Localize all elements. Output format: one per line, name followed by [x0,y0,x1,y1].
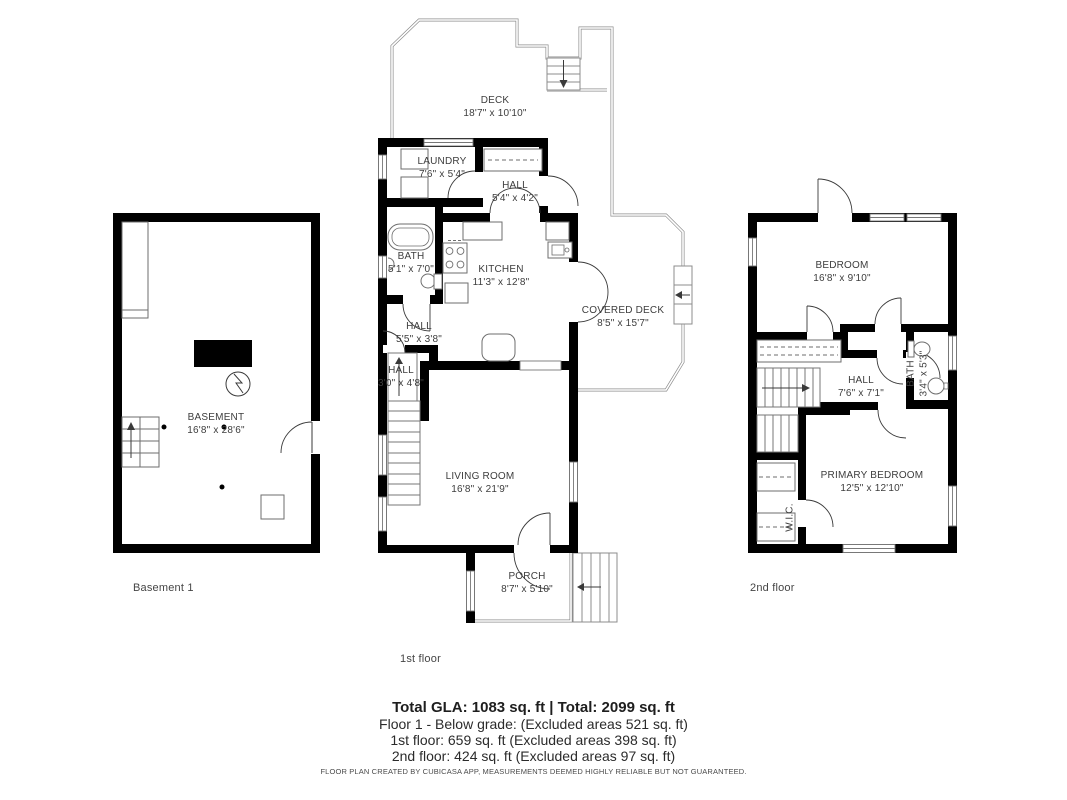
summary-floor1: Floor 1 - Below grade: (Excluded areas 5… [0,716,1067,732]
room-dims: 8'7" x 5'10" [501,583,553,596]
room-name: BATH [388,250,434,263]
room-label-bath-2: BATH 3'4" x 5'3" [905,348,932,400]
room-label-wic: W.I.C. [784,494,797,542]
room-name: HALL [396,320,442,333]
room-name: PRIMARY BEDROOM [821,469,924,482]
room-name: PORCH [501,570,553,583]
room-name: LAUNDRY [417,155,466,168]
room-label-porch: PORCH 8'7" x 5'10" [501,570,553,596]
room-dims: 18'7" x 10'10" [463,107,526,120]
room-name: KITCHEN [473,263,530,276]
room-name: W.I.C. [784,494,797,542]
room-name: HALL [378,364,424,377]
room-label-laundry: LAUNDRY 7'6" x 5'4" [417,155,466,181]
room-dims: 5'4" x 4'2" [492,192,538,205]
room-name: BASEMENT [187,411,244,424]
room-name: LIVING ROOM [446,470,515,483]
room-dims: 3'4" x 5'3" [918,348,931,400]
room-dims: 16'8" x 21'9" [446,483,515,496]
room-label-living-room: LIVING ROOM 16'8" x 21'9" [446,470,515,496]
room-label-hall-1: HALL 5'4" x 4'2" [492,179,538,205]
floor-label-first: 1st floor [400,653,441,665]
room-dims: 11'3" x 12'8" [473,276,530,289]
floor-label-basement: Basement 1 [133,582,194,594]
room-dims: 16'8" x 9'10" [813,272,870,285]
room-name: BATH [905,348,918,400]
room-label-hall-4: HALL 7'6" x 7'1" [838,374,884,400]
room-dims: 5'5" x 3'8" [396,333,442,346]
floor-label-second: 2nd floor [750,582,795,594]
room-label-bedroom: BEDROOM 16'8" x 9'10" [813,259,870,285]
room-name: BEDROOM [813,259,870,272]
room-name: HALL [838,374,884,387]
room-label-kitchen: KITCHEN 11'3" x 12'8" [473,263,530,289]
summary-floor3: 2nd floor: 424 sq. ft (Excluded areas 97… [0,748,1067,764]
floorplan-linework [0,0,1067,800]
room-label-basement: BASEMENT 16'8" x 28'6" [187,411,244,437]
room-label-covered-deck: COVERED DECK 8'5" x 15'7" [582,304,664,330]
summary-floor2: 1st floor: 659 sq. ft (Excluded areas 39… [0,732,1067,748]
room-label-deck: DECK 18'7" x 10'10" [463,94,526,120]
summary-disclaimer: FLOOR PLAN CREATED BY CUBICASA APP, MEAS… [0,767,1067,776]
room-dims: 5'1" x 7'0" [388,263,434,276]
basement-plan [118,218,322,549]
room-dims: 3'0" x 4'8" [378,377,424,390]
summary-total-gla: Total GLA: 1083 sq. ft | Total: 2099 sq.… [0,699,1067,716]
room-dims: 7'6" x 5'4" [417,168,466,181]
room-label-hall-2: HALL 5'5" x 3'8" [396,320,442,346]
room-name: HALL [492,179,538,192]
floorplan-page: BASEMENT 16'8" x 28'6" DECK 18'7" x 10'1… [0,0,1067,800]
room-label-bath-1: BATH 5'1" x 7'0" [388,250,434,276]
room-dims: 16'8" x 28'6" [187,424,244,437]
room-label-primary-bedroom: PRIMARY BEDROOM 12'5" x 12'10" [821,469,924,495]
room-dims: 7'6" x 7'1" [838,387,884,400]
room-dims: 8'5" x 15'7" [582,317,664,330]
room-name: DECK [463,94,526,107]
room-dims: 12'5" x 12'10" [821,482,924,495]
room-label-hall-3: HALL 3'0" x 4'8" [378,364,424,390]
room-name: COVERED DECK [582,304,664,317]
